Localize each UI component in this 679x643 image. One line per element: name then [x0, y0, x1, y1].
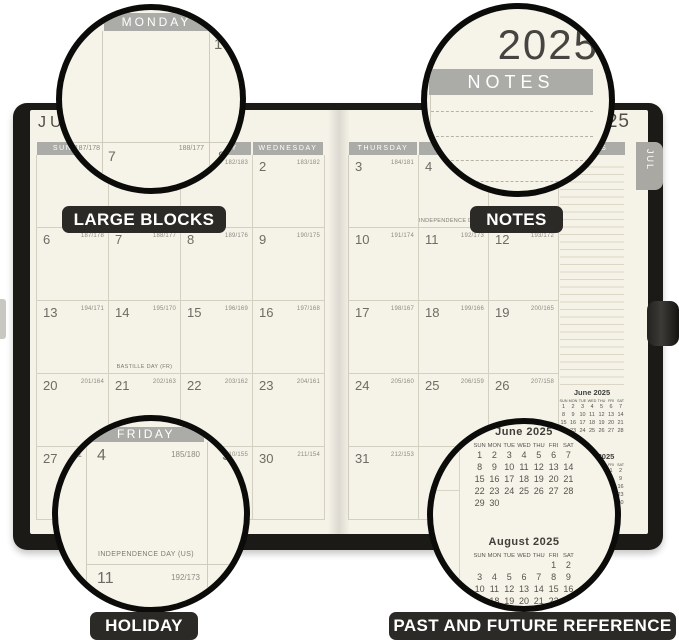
- mini-day: 2: [487, 449, 502, 461]
- mini-day: 7: [531, 571, 546, 583]
- grid-line: [433, 490, 459, 491]
- calendar-cell: 6187/178: [37, 228, 109, 301]
- calendar-cell: 15196/169: [181, 301, 253, 374]
- julian-count: 187/178: [81, 233, 104, 239]
- mini-day: [517, 559, 532, 571]
- mini-day: 1: [472, 449, 487, 461]
- magnified-friday-bar: FRIDAY: [88, 427, 204, 442]
- mini-day: 22: [546, 595, 561, 607]
- calendar-cell: 9190/175: [253, 228, 325, 301]
- mini-day: 19: [597, 419, 607, 427]
- julian-count: 195/170: [153, 306, 176, 312]
- magnified-julian: 188/177: [152, 145, 204, 152]
- mini-day: 11: [487, 583, 502, 595]
- calendar-cell: 13194/171: [37, 301, 109, 374]
- dashed-line: [431, 111, 593, 112]
- day-number: 10: [355, 232, 369, 247]
- mini-day: 10: [578, 411, 588, 419]
- julian-count: 206/159: [461, 379, 484, 385]
- mini-day: 9: [487, 461, 502, 473]
- mini-calendar-week: 891011121314: [558, 411, 626, 419]
- mini-day: 18: [487, 595, 502, 607]
- calendar-cell: 7188/177: [109, 228, 181, 301]
- day-number: 6: [43, 232, 50, 247]
- calendar-cell: 10191/174: [349, 228, 419, 301]
- magnified-year: 2025: [445, 21, 599, 69]
- magnified-holiday-text: INDEPENDENCE DAY (US): [88, 551, 204, 558]
- calendar-cell: 18199/166: [419, 301, 489, 374]
- mini-day: 30: [487, 497, 502, 509]
- mini-day: 17: [502, 473, 517, 485]
- mini-day: 8: [559, 411, 569, 419]
- julian-count: 189/176: [225, 233, 248, 239]
- mini-day: 13: [606, 411, 616, 419]
- mini-day: 14: [616, 411, 626, 419]
- mini-calendar-week: 3456789: [472, 571, 576, 583]
- mini-day: 7: [561, 449, 576, 461]
- grid-line: [86, 442, 87, 607]
- julian-count: 203/162: [225, 379, 248, 385]
- mini-day: 4: [517, 449, 532, 461]
- mini-day: 28: [616, 427, 626, 435]
- julian-count: 188/177: [153, 233, 176, 239]
- magnifier-reference: June 2025SUNMONTUEWEDTHUFRISAT1234567891…: [427, 418, 621, 612]
- mini-day: 2: [561, 559, 576, 571]
- magnified-day-11: 11: [97, 570, 114, 588]
- day-number: 8: [187, 232, 194, 247]
- day-number: 2: [259, 159, 266, 174]
- day-number: 31: [355, 451, 369, 466]
- month-tab-label: JUL: [645, 149, 655, 171]
- mini-day: 4: [587, 403, 597, 411]
- magnified-mini-august: August 2025SUNMONTUEWEDTHUFRISAT12345678…: [472, 536, 576, 612]
- julian-count: 199/166: [461, 306, 484, 312]
- mini-day: 27: [546, 485, 561, 497]
- day-number: 23: [259, 378, 273, 393]
- mini-day: 16: [487, 473, 502, 485]
- day-number: 19: [495, 305, 509, 320]
- notes-ruled-lines: [560, 160, 624, 386]
- mini-day: 8: [472, 461, 487, 473]
- mini-day: 2: [616, 467, 626, 475]
- day-number: 3: [355, 159, 362, 174]
- julian-count: 191/174: [391, 233, 414, 239]
- mini-day: 20: [546, 473, 561, 485]
- grid-line: [62, 142, 240, 143]
- day-number: 4: [425, 159, 432, 174]
- mini-day: 25: [587, 427, 597, 435]
- magnified-julian-fragment: 181: [58, 450, 82, 459]
- mini-day: [502, 559, 517, 571]
- magnified-day-7: 7: [108, 148, 116, 164]
- julian-count: 182/183: [225, 160, 248, 166]
- mini-day: 5: [597, 403, 607, 411]
- julian-count: 193/172: [531, 233, 554, 239]
- magnified-notes-bar: NOTES: [429, 69, 593, 95]
- mini-day: 11: [587, 411, 597, 419]
- magnified-mini-june: June 2025SUNMONTUEWEDTHUFRISAT1234567891…: [472, 426, 576, 509]
- mini-day: [531, 559, 546, 571]
- mini-calendar-week: 22232425262728: [472, 485, 576, 497]
- mini-day: 29: [472, 497, 487, 509]
- day-number: 27: [43, 451, 57, 466]
- magnified-julian: 185/180: [124, 450, 200, 459]
- day-number: 22: [187, 378, 201, 393]
- julian-count: 192/173: [461, 233, 484, 239]
- mini-day: 25: [517, 485, 532, 497]
- mini-day: 9: [568, 411, 578, 419]
- day-number: 25: [425, 378, 439, 393]
- grid-line: [207, 442, 208, 607]
- mini-day: 17: [578, 419, 588, 427]
- day-number: 30: [259, 451, 273, 466]
- julian-count: 200/165: [531, 306, 554, 312]
- mini-day: [597, 435, 607, 443]
- mini-day: [546, 497, 561, 509]
- calendar-cell: 23204/161: [253, 374, 325, 447]
- mini-day: 9: [561, 571, 576, 583]
- page-gutter: [328, 110, 350, 534]
- julian-count: 207/158: [531, 379, 554, 385]
- mini-calendar-week: 1234567: [558, 403, 626, 411]
- mini-day: 2: [568, 403, 578, 411]
- grid-line: [430, 95, 431, 191]
- mini-calendar-title: June 2025: [558, 388, 626, 397]
- calendar-cell: 19200/165: [489, 301, 559, 374]
- product-photo-planner: JULY 2025 SUNDAY MONDAY TUESDAY WEDNESDA…: [0, 0, 679, 643]
- magnified-monday-bar: MONDAY: [104, 13, 209, 31]
- grid-line: [86, 564, 244, 565]
- mini-day: 21: [616, 419, 626, 427]
- mini-day: 13: [546, 461, 561, 473]
- day-number: 14: [115, 305, 129, 320]
- julian-count: 202/163: [153, 379, 176, 385]
- mini-calendar-week: 17181920212223: [472, 595, 576, 607]
- day-number: 9: [259, 232, 266, 247]
- mini-day: [487, 559, 502, 571]
- mini-day: 17: [472, 595, 487, 607]
- magnifier-holiday: FRIDAY 181 4 185/180 5 INDEPENDENCE DAY …: [52, 415, 250, 613]
- mini-day: 12: [597, 411, 607, 419]
- mini-day: [531, 497, 546, 509]
- calendar-cell: 11192/173: [419, 228, 489, 301]
- julian-count: 204/161: [297, 379, 320, 385]
- callout-past-future: PAST AND FUTURE REFERENCE: [389, 612, 676, 640]
- mini-calendar-week: 2930: [472, 497, 576, 509]
- mini-day: 3: [578, 403, 588, 411]
- mini-day: 21: [531, 595, 546, 607]
- mini-day: 10: [502, 461, 517, 473]
- calendar-cell: 2183/182: [253, 155, 325, 228]
- mini-day: 23: [487, 485, 502, 497]
- calendar-cell: 24205/160: [349, 374, 419, 447]
- mini-day: 3: [472, 571, 487, 583]
- mini-day: 5: [502, 571, 517, 583]
- mini-day: [561, 497, 576, 509]
- day-number: 16: [259, 305, 273, 320]
- julian-count: 205/160: [391, 379, 414, 385]
- mini-day: 20: [517, 595, 532, 607]
- mini-day: 14: [561, 461, 576, 473]
- calendar-cell: 14195/170BASTILLE DAY (FR): [109, 301, 181, 374]
- calendar-cell: 16197/168: [253, 301, 325, 374]
- mini-day: 6: [606, 403, 616, 411]
- mini-day: 13: [517, 583, 532, 595]
- mini-day: 24: [578, 427, 588, 435]
- dashed-line: [431, 160, 593, 161]
- magnified-day-5: 5: [222, 447, 231, 465]
- holiday-text: BASTILLE DAY (FR): [109, 364, 180, 370]
- mini-day: 12: [531, 461, 546, 473]
- callout-large-blocks: LARGE BLOCKS: [62, 206, 226, 233]
- julian-count: 198/167: [391, 306, 414, 312]
- elastic-band-edge: [0, 299, 6, 339]
- magnified-day-8: 8: [218, 148, 226, 164]
- julian-count: 211/154: [297, 452, 320, 458]
- grid-line: [459, 424, 460, 606]
- julian-count: 183/182: [297, 160, 320, 166]
- day-number: 7: [115, 232, 122, 247]
- mini-day: 15: [472, 473, 487, 485]
- julian-count: 190/175: [297, 233, 320, 239]
- mini-day: 18: [587, 419, 597, 427]
- mini-calendar-week: 15161718192021: [472, 473, 576, 485]
- mini-day: [606, 435, 616, 443]
- julian-count: 196/169: [225, 306, 248, 312]
- mini-day: 28: [561, 485, 576, 497]
- magnified-julian: 192/173: [124, 573, 200, 582]
- mini-day: 24: [502, 485, 517, 497]
- callout-holiday: HOLIDAY: [90, 612, 198, 640]
- magnifier-large-blocks: MONDAY 1 187/178 7 188/177 8: [56, 4, 246, 194]
- day-number: 11: [425, 232, 439, 247]
- grid-line: [209, 31, 210, 188]
- mini-day: 21: [561, 473, 576, 485]
- mini-day: 12: [502, 583, 517, 595]
- calendar-cell: 3184/181: [349, 155, 419, 228]
- mini-day: 26: [531, 485, 546, 497]
- mini-day: 3: [502, 449, 517, 461]
- dashed-line: [431, 181, 593, 182]
- julian-count: 197/168: [297, 306, 320, 312]
- callout-notes: NOTES: [470, 206, 563, 233]
- magnified-day-12-fragment: 12: [226, 570, 244, 588]
- mini-day: 23: [561, 595, 576, 607]
- day-number: 12: [495, 232, 509, 247]
- dashed-line: [431, 136, 593, 137]
- calendar-cell: 8189/176: [181, 228, 253, 301]
- day-number: 20: [43, 378, 57, 393]
- mini-day: 19: [502, 595, 517, 607]
- mini-calendar-week: 891011121314: [472, 461, 576, 473]
- mini-day: 22: [472, 485, 487, 497]
- day-number: 18: [425, 305, 439, 320]
- mini-day: 7: [616, 403, 626, 411]
- magnified-day-4: 4: [97, 447, 106, 465]
- mini-day: 27: [606, 427, 616, 435]
- mini-calendar-week: 1234567: [472, 449, 576, 461]
- magnified-day-1: 1: [214, 36, 222, 53]
- mini-day: 5: [531, 449, 546, 461]
- weekday-header-wednesday: WEDNESDAY: [253, 142, 323, 155]
- mini-day: [517, 497, 532, 509]
- mini-day: 18: [517, 473, 532, 485]
- mini-day: 10: [472, 583, 487, 595]
- mini-calendar-week: 10111213141516: [472, 583, 576, 595]
- julian-count: 201/164: [81, 379, 104, 385]
- julian-count: 194/171: [81, 306, 104, 312]
- mini-calendar-title: June 2025: [472, 426, 576, 438]
- day-number: 24: [355, 378, 369, 393]
- mini-day: 1: [546, 559, 561, 571]
- mini-day: 4: [487, 571, 502, 583]
- pen-loop: [647, 301, 679, 346]
- mini-day: 9: [616, 475, 626, 483]
- grid-line: [102, 31, 103, 188]
- mini-day: 16: [561, 583, 576, 595]
- calendar-cell: 30211/154: [253, 447, 325, 520]
- mini-day: 15: [546, 583, 561, 595]
- day-number: 26: [495, 378, 509, 393]
- magnifier-notes: 2025 NOTES: [421, 3, 615, 197]
- month-tab: JUL: [636, 142, 663, 190]
- mini-day: [472, 559, 487, 571]
- mini-day: 8: [546, 571, 561, 583]
- mini-day: 6: [517, 571, 532, 583]
- mini-calendar-title: August 2025: [472, 536, 576, 548]
- day-number: 15: [187, 305, 201, 320]
- day-number: 21: [115, 378, 129, 393]
- calendar-cell: 31212/153: [349, 447, 419, 520]
- mini-day: 26: [597, 427, 607, 435]
- mini-day: [502, 497, 517, 509]
- mini-day: 14: [531, 583, 546, 595]
- day-number: 13: [43, 305, 57, 320]
- mini-day: 6: [546, 449, 561, 461]
- mini-calendar-week: 12: [472, 559, 576, 571]
- calendar-cell: 17198/167: [349, 301, 419, 374]
- julian-count: 184/181: [391, 160, 414, 166]
- magnified-julian: 187/178: [56, 145, 100, 152]
- calendar-cell: 12193/172: [489, 228, 559, 301]
- weekday-header-thursday: THURSDAY: [349, 142, 417, 155]
- day-number: 17: [355, 305, 369, 320]
- mini-day: 19: [531, 473, 546, 485]
- julian-count: 212/153: [391, 452, 414, 458]
- mini-day: 1: [559, 403, 569, 411]
- mini-day: [616, 435, 626, 443]
- mini-day: 20: [606, 419, 616, 427]
- mini-day: 11: [517, 461, 532, 473]
